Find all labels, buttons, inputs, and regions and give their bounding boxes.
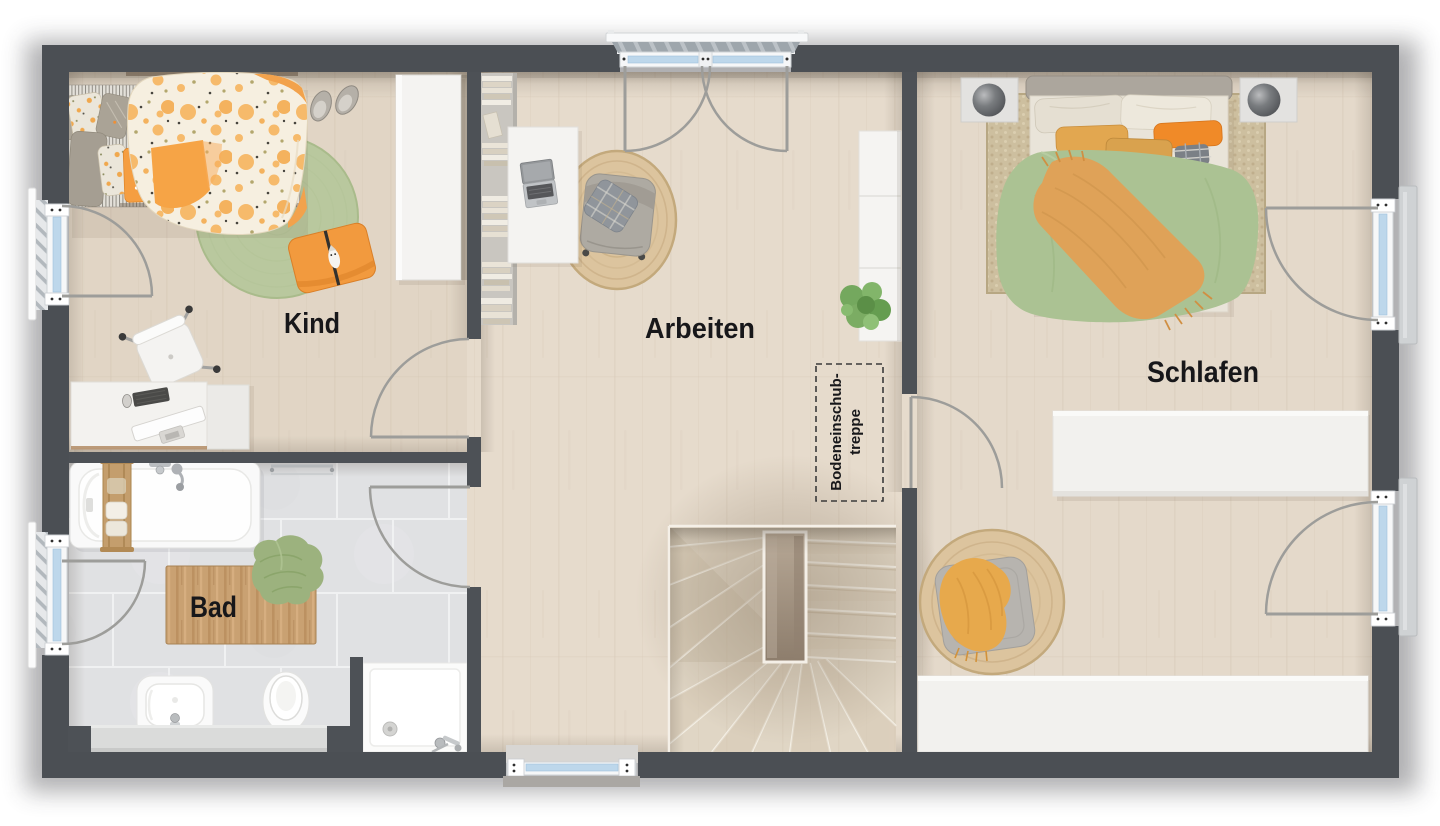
svg-text:Kind: Kind: [284, 308, 340, 340]
svg-text:Arbeiten: Arbeiten: [645, 313, 755, 345]
svg-text:Bodeneinschub-: Bodeneinschub-: [828, 373, 845, 491]
svg-text:Schlafen: Schlafen: [1147, 356, 1259, 389]
svg-text:Bad: Bad: [190, 591, 237, 624]
svg-text:treppe: treppe: [847, 409, 864, 455]
